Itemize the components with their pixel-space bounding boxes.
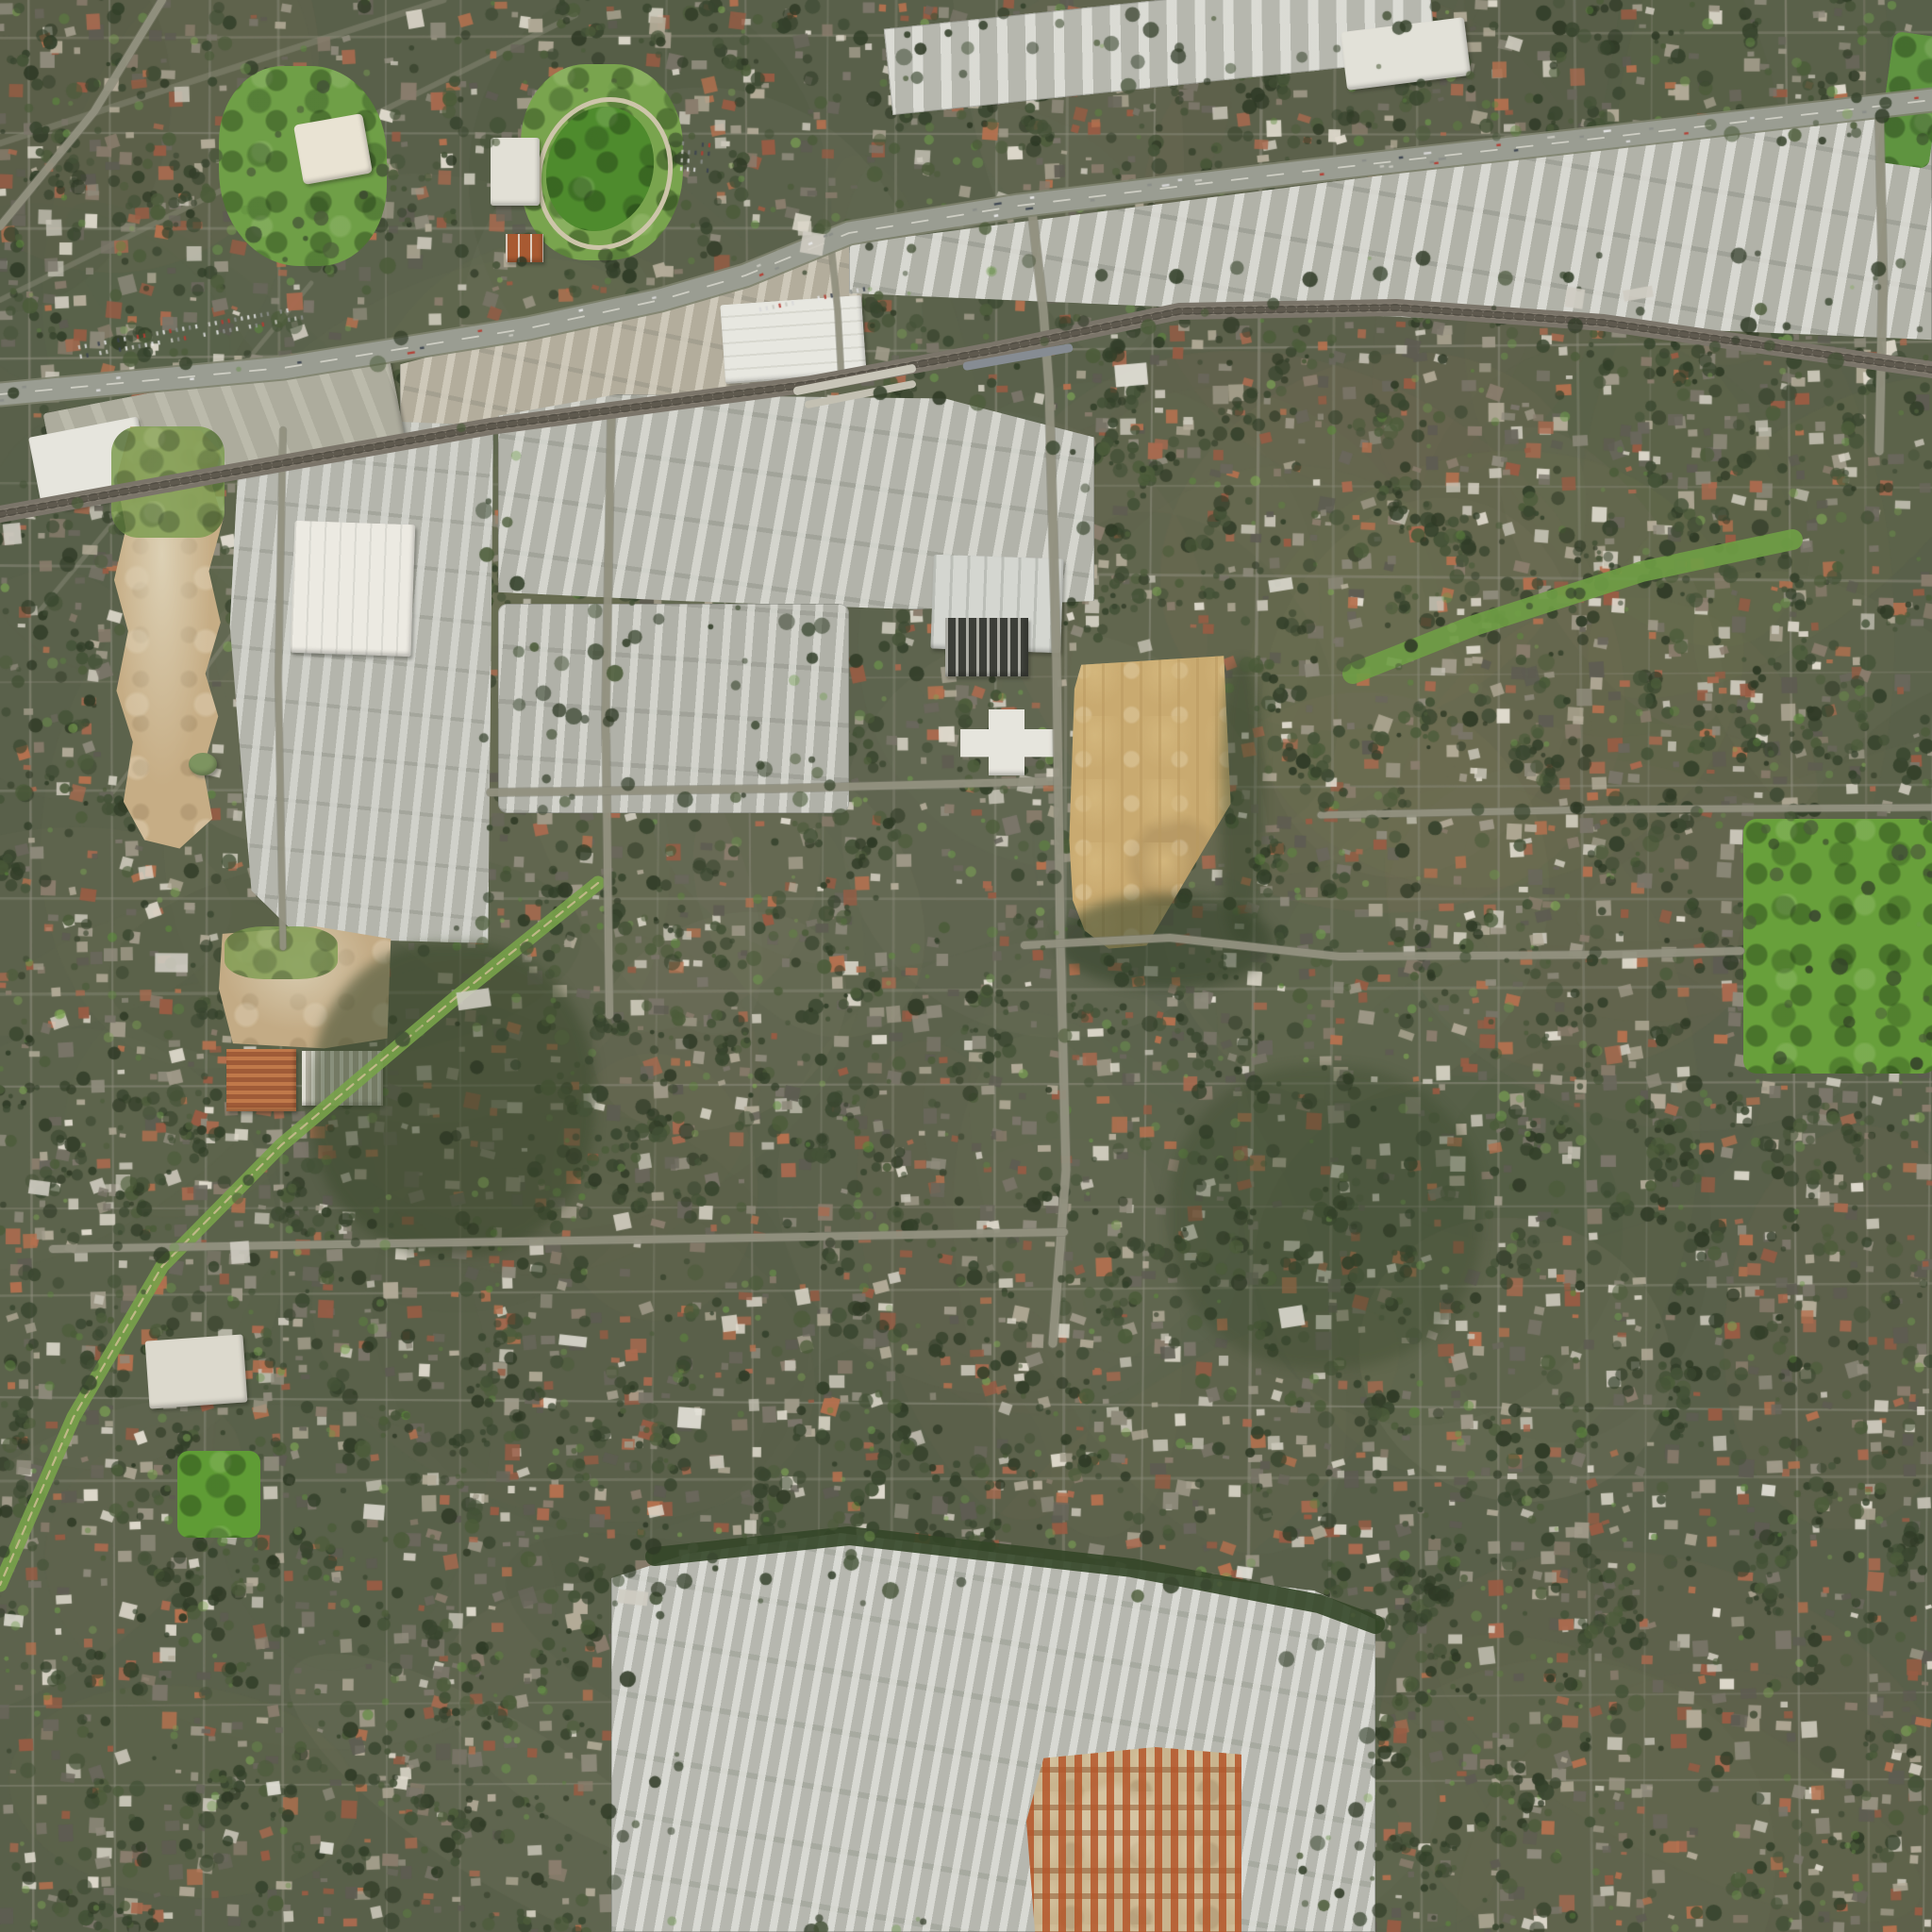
satellite-view — [0, 0, 1932, 1932]
tree-overlay-canvas — [0, 0, 1932, 1932]
